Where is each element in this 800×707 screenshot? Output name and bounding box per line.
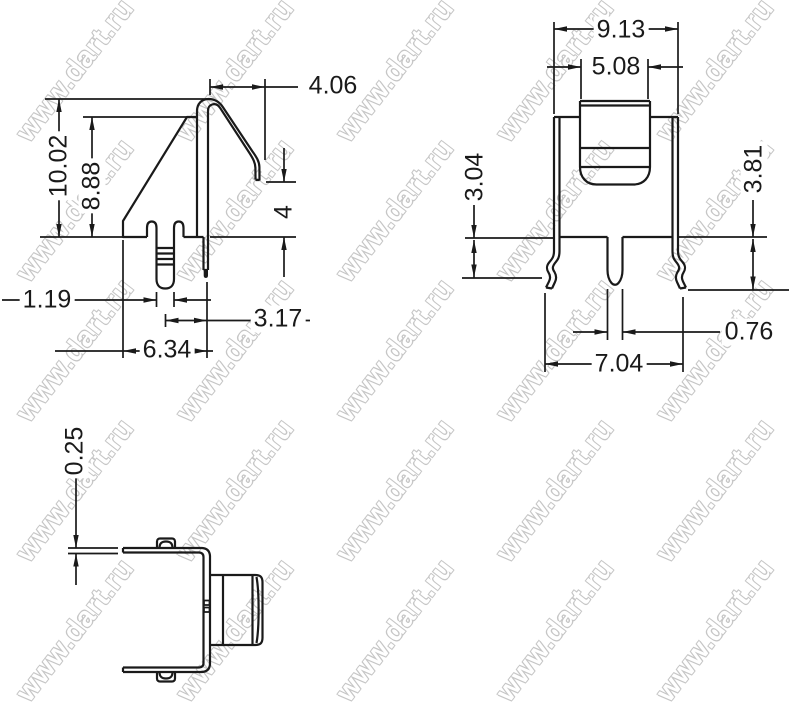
arrowhead — [56, 99, 61, 112]
arrowhead — [194, 348, 207, 353]
arrowhead — [623, 329, 636, 334]
arrowhead — [89, 117, 94, 130]
arrowhead — [166, 318, 179, 323]
arrowhead — [281, 237, 286, 250]
dimension-line — [210, 79, 298, 160]
arrowhead — [174, 297, 187, 302]
arrowhead — [750, 224, 755, 237]
front-tab — [580, 101, 650, 185]
top-bracket-outline — [123, 548, 210, 672]
arrowhead — [750, 277, 755, 290]
arrowhead — [471, 265, 476, 278]
arrowhead — [210, 84, 223, 89]
top-mount-tabs — [157, 539, 175, 682]
arrowhead — [595, 329, 608, 334]
top-view — [68, 478, 263, 682]
dim-label-overall-height: 10.02 — [46, 132, 73, 201]
dim-label-material-thickness: 0.25 — [62, 424, 89, 479]
arrowhead — [554, 26, 567, 31]
arrowhead — [73, 535, 78, 548]
dim-label-base-width: 6.34 — [140, 337, 195, 364]
front-body-outline — [554, 117, 678, 237]
dim-label-pin-width: 1.19 — [20, 287, 75, 314]
dim-label-left-leg-drop: 3.04 — [462, 150, 489, 205]
technical-drawing — [0, 0, 800, 707]
arrowhead — [670, 361, 683, 366]
side-body-outline — [123, 111, 208, 289]
arrowhead — [545, 361, 558, 366]
arrowhead — [144, 297, 157, 302]
top-barrel — [210, 575, 263, 645]
front-right-leg — [673, 237, 687, 289]
dim-label-body-height: 8.88 — [79, 159, 106, 214]
arrowhead — [194, 318, 207, 323]
dim-label-hook-overhang: 4.06 — [306, 73, 361, 100]
dim-right-leg-drop — [679, 200, 789, 290]
front-left-leg — [546, 237, 560, 289]
dim-label-tab-width: 5.08 — [589, 54, 644, 81]
side-rear-leg — [204, 237, 209, 277]
dim-label-tip-to-base: 4 — [271, 202, 298, 222]
arrowhead — [252, 84, 265, 89]
dim-label-pin-to-back: 3.17 — [251, 306, 306, 333]
dim-label-overall-width: 9.13 — [594, 17, 649, 44]
top-pin-serrations — [204, 601, 210, 613]
arrowhead — [281, 169, 286, 182]
arrowhead — [750, 239, 755, 252]
drawing-canvas: www.dart.ruwww.dart.ruwww.dart.ruwww.dar… — [0, 0, 800, 707]
arrowhead — [123, 348, 136, 353]
dim-left-leg-drop — [462, 205, 553, 278]
arrowhead — [471, 225, 476, 238]
arrowhead — [73, 554, 78, 567]
arrowhead — [89, 224, 94, 237]
dim-label-pin-thickness: 0.76 — [722, 319, 777, 346]
arrowhead — [471, 240, 476, 253]
dim-pin-thickness — [573, 289, 720, 340]
dim-label-right-leg-drop: 3.81 — [741, 142, 768, 197]
arrowhead — [648, 64, 661, 69]
side-hook — [197, 99, 260, 181]
dimension-line — [68, 478, 118, 585]
dim-label-leg-span: 7.04 — [592, 351, 647, 378]
arrowhead — [568, 64, 581, 69]
dim-material-thickness — [68, 478, 118, 585]
front-center-pin — [608, 237, 623, 285]
arrowhead — [665, 26, 678, 31]
arrowhead — [56, 224, 61, 237]
side-pin-serrations — [157, 248, 175, 265]
dim-hook-overhang — [210, 79, 298, 160]
dimension-line — [679, 200, 789, 290]
